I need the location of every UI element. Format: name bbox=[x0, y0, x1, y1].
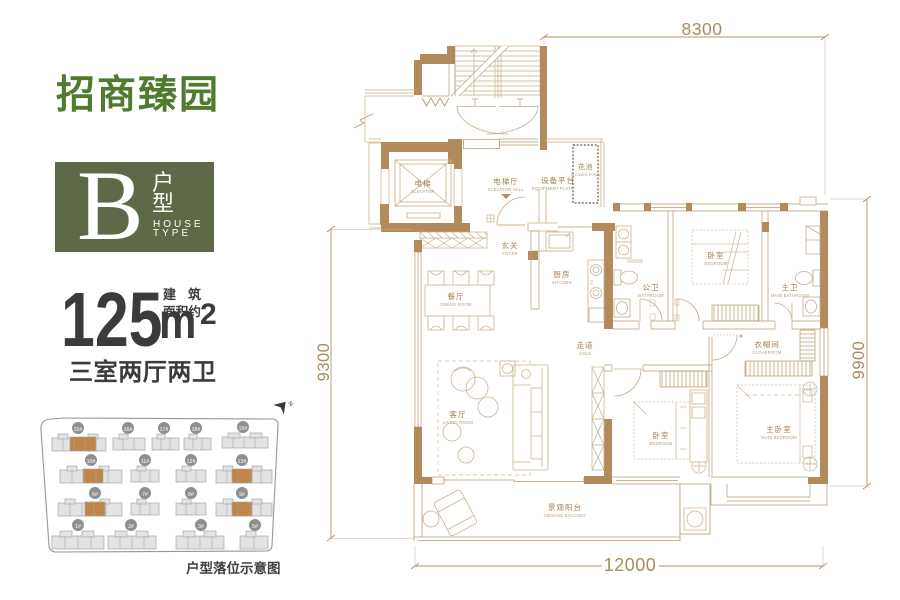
svg-text:玄关: 玄关 bbox=[502, 240, 519, 250]
svg-text:BEDROOM: BEDROOM bbox=[649, 441, 672, 446]
svg-text:主卫: 主卫 bbox=[782, 282, 799, 292]
svg-text:DINING ROOM: DINING ROOM bbox=[440, 302, 471, 307]
svg-text:8300: 8300 bbox=[682, 19, 723, 39]
svg-text:BATHROOM: BATHROOM bbox=[638, 293, 664, 298]
svg-text:电梯厅: 电梯厅 bbox=[493, 176, 519, 186]
svg-text:5#: 5# bbox=[252, 524, 258, 530]
svg-text:11#: 11# bbox=[141, 459, 149, 465]
svg-text:餐厅: 餐厅 bbox=[448, 292, 465, 301]
svg-text:15#: 15# bbox=[74, 427, 83, 433]
svg-text:7#: 7# bbox=[142, 492, 148, 498]
svg-text:9900: 9900 bbox=[850, 341, 868, 380]
svg-text:卧室: 卧室 bbox=[708, 250, 725, 260]
svg-text:KITCHEN: KITCHEN bbox=[552, 280, 572, 285]
svg-text:卧室: 卧室 bbox=[653, 430, 670, 440]
svg-text:6#: 6# bbox=[92, 492, 98, 498]
svg-text:厨房: 厨房 bbox=[554, 269, 571, 279]
svg-text:AISLE: AISLE bbox=[579, 351, 592, 356]
svg-text:走道: 走道 bbox=[577, 340, 594, 350]
svg-text:18#: 18# bbox=[192, 427, 201, 433]
svg-text:BEDROOM: BEDROOM bbox=[704, 261, 727, 266]
svg-text:17#: 17# bbox=[160, 427, 169, 433]
svg-text:景观阳台: 景观阳台 bbox=[548, 502, 582, 512]
svg-text:FLOWER POND: FLOWER POND bbox=[571, 172, 601, 177]
svg-text:9300: 9300 bbox=[315, 343, 333, 382]
svg-text:19#: 19# bbox=[239, 426, 248, 432]
svg-text:衣帽间: 衣帽间 bbox=[754, 339, 780, 349]
svg-text:公卫: 公卫 bbox=[643, 283, 660, 292]
svg-text:12#: 12# bbox=[187, 459, 196, 465]
svg-text:16#: 16# bbox=[124, 427, 133, 433]
svg-text:花池: 花池 bbox=[578, 162, 593, 171]
svg-text:主卧室: 主卧室 bbox=[766, 424, 792, 434]
svg-text:客厅: 客厅 bbox=[450, 409, 467, 419]
svg-text:CLOAKROOM: CLOAKROOM bbox=[752, 350, 781, 355]
svg-text:1#: 1# bbox=[75, 524, 81, 530]
svg-text:FOYER: FOYER bbox=[502, 251, 517, 256]
svg-text:9#: 9# bbox=[239, 492, 245, 498]
svg-text:VIEWING BALCONY: VIEWING BALCONY bbox=[544, 513, 586, 518]
svg-text:12000: 12000 bbox=[604, 555, 657, 575]
svg-text:13#: 13# bbox=[238, 459, 247, 465]
svg-text:ELEVATOR: ELEVATOR bbox=[411, 189, 434, 194]
svg-text:10#: 10# bbox=[87, 459, 96, 465]
svg-text:3#: 3# bbox=[198, 524, 204, 530]
svg-text:MAIN BEDROOM: MAIN BEDROOM bbox=[761, 435, 797, 440]
svg-text:ELEVATOR HALL: ELEVATOR HALL bbox=[488, 187, 524, 192]
svg-text:N: N bbox=[287, 401, 294, 408]
svg-text:电梯: 电梯 bbox=[415, 178, 432, 188]
svg-text:2#: 2# bbox=[128, 524, 134, 530]
svg-text:8#: 8# bbox=[188, 492, 194, 498]
